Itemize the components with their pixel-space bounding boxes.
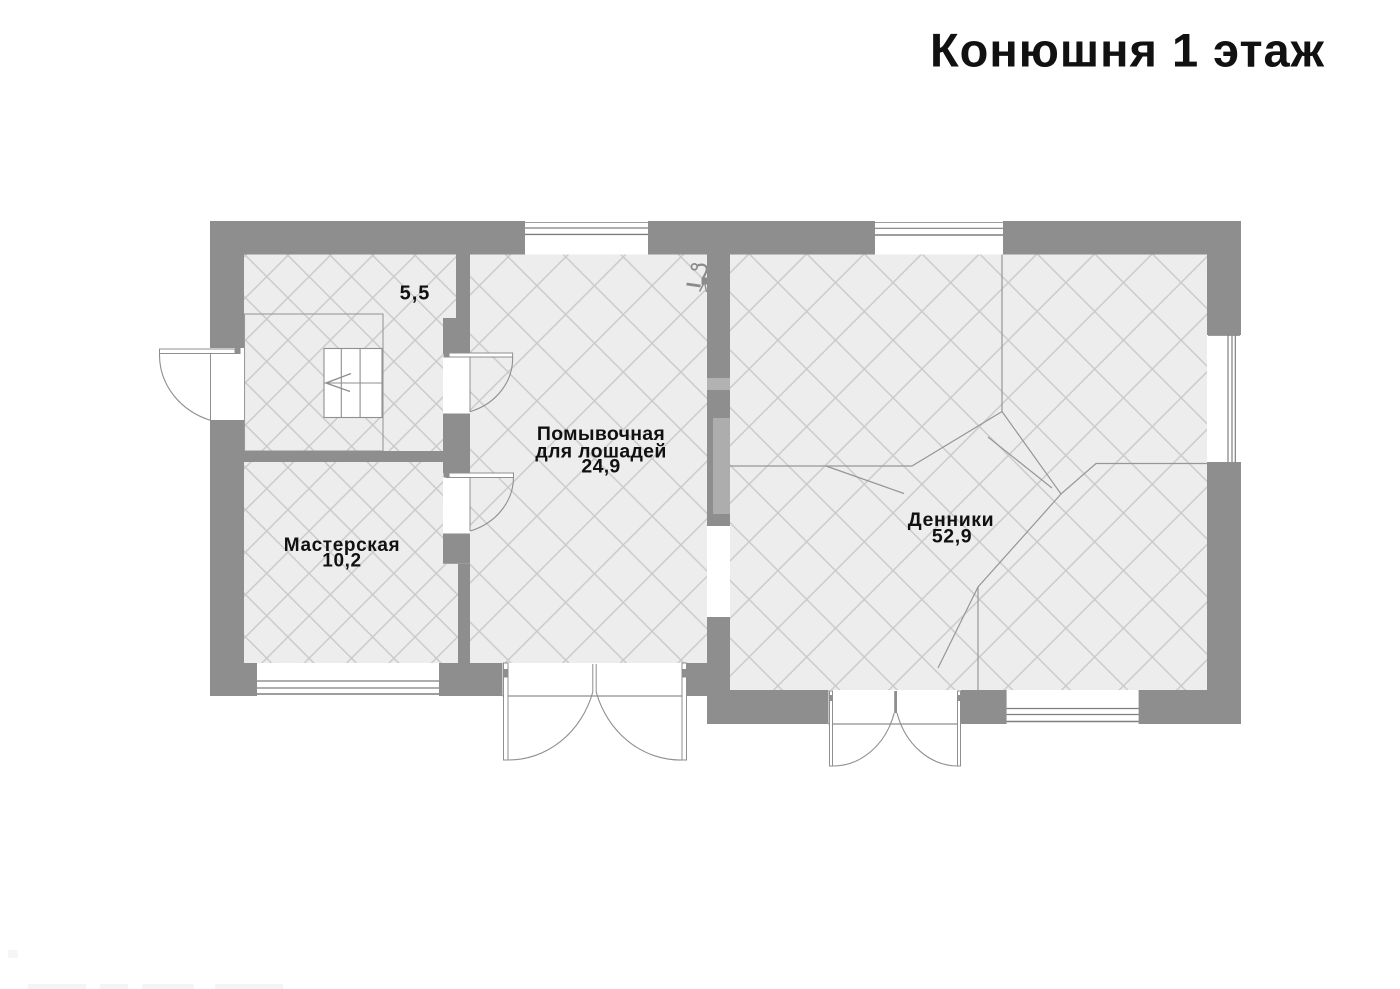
svg-text:5,5: 5,5 bbox=[400, 283, 431, 305]
svg-text:Конюшня 1 этаж: Конюшня 1 этаж bbox=[930, 24, 1325, 77]
svg-text:24,9: 24,9 bbox=[581, 456, 620, 478]
svg-text:10,2: 10,2 bbox=[322, 551, 361, 572]
svg-text:52,9: 52,9 bbox=[932, 526, 972, 548]
